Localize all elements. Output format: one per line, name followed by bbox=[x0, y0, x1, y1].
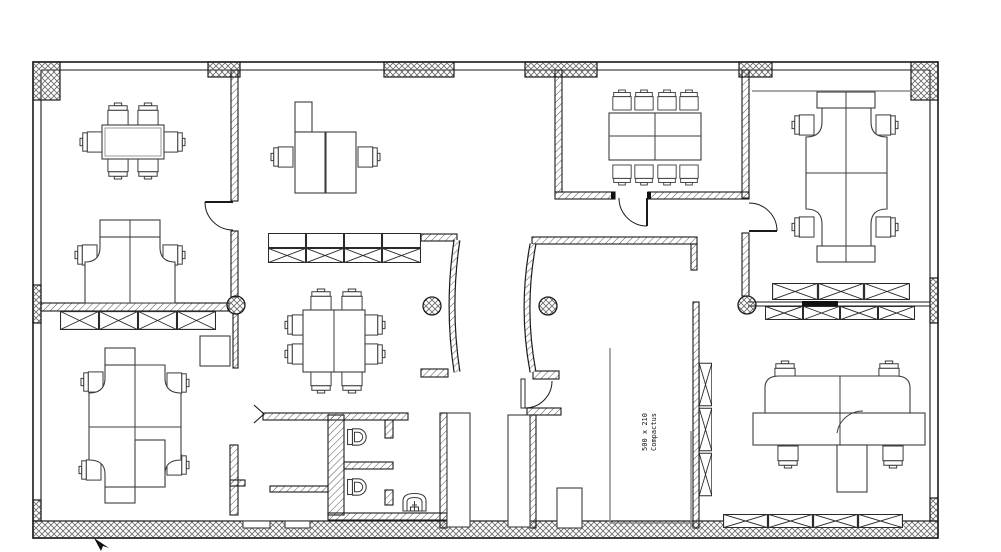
door-swing bbox=[521, 379, 552, 408]
door-sill bbox=[243, 521, 270, 528]
floor-plan-drawing: Compactus 500 x 210 bbox=[0, 0, 1001, 552]
wall-solid-segment bbox=[802, 301, 838, 306]
toilet bbox=[348, 429, 367, 445]
task-chair bbox=[342, 289, 362, 311]
task-chair bbox=[79, 460, 101, 480]
task-chair bbox=[163, 132, 185, 152]
workstation-pod-top-center bbox=[271, 102, 380, 193]
structural-column bbox=[423, 297, 441, 315]
task-chair bbox=[358, 147, 380, 167]
cabinet-box bbox=[200, 336, 230, 366]
structural-column bbox=[227, 296, 245, 314]
task-chair bbox=[792, 115, 814, 135]
task-chair bbox=[658, 90, 676, 110]
workstation-pod-left bbox=[75, 220, 185, 303]
compactus-label-line2: 500 x 210 bbox=[641, 413, 649, 451]
compactus-label-line1: Compactus bbox=[650, 413, 658, 451]
task-chair bbox=[680, 165, 698, 185]
storage-cabinets-center bbox=[268, 233, 420, 262]
workstation-pod-bottom-left bbox=[79, 348, 189, 503]
task-chair bbox=[613, 165, 631, 185]
task-chair bbox=[876, 217, 898, 237]
floor-plan-page: Compactus 500 x 210 bbox=[0, 0, 1001, 552]
storage-cabinets-right-lower bbox=[765, 306, 914, 319]
urinal bbox=[403, 494, 426, 512]
task-chair bbox=[342, 371, 362, 393]
conference-table bbox=[609, 90, 701, 185]
task-chair bbox=[108, 157, 128, 179]
task-chair bbox=[271, 147, 293, 167]
curved-partition-west bbox=[452, 240, 457, 372]
task-chair bbox=[311, 289, 331, 311]
task-chair bbox=[778, 446, 798, 468]
toilet bbox=[348, 479, 367, 495]
task-chair bbox=[792, 217, 814, 237]
storage-cabinets-compactus bbox=[699, 363, 712, 496]
task-chair bbox=[363, 315, 385, 335]
door-swing bbox=[205, 202, 233, 230]
storage-cabinets-left bbox=[60, 312, 215, 330]
compactus-label: Compactus 500 x 210 bbox=[641, 413, 658, 451]
workstation-pod-bottom-right bbox=[753, 361, 925, 492]
task-chair bbox=[635, 165, 653, 185]
door-swing bbox=[749, 203, 777, 231]
structural-column bbox=[738, 296, 756, 314]
door-sill bbox=[285, 521, 310, 528]
task-chair bbox=[635, 90, 653, 110]
task-chair bbox=[363, 344, 385, 364]
cursor-arrow bbox=[94, 538, 109, 551]
task-chair bbox=[613, 90, 631, 110]
task-chair bbox=[876, 115, 898, 135]
storage-cabinets-right-upper bbox=[773, 283, 910, 299]
workstation-pod-top-right bbox=[792, 92, 898, 262]
task-chair bbox=[883, 446, 903, 468]
structural-column bbox=[539, 297, 557, 315]
task-chair bbox=[311, 371, 331, 393]
door-swing bbox=[611, 192, 651, 226]
doors bbox=[205, 192, 777, 408]
meeting-table-top-left bbox=[80, 103, 185, 179]
task-chair bbox=[658, 165, 676, 185]
task-chair bbox=[680, 90, 698, 110]
meeting-table-center bbox=[285, 289, 385, 393]
task-chair bbox=[138, 157, 158, 179]
task-chair bbox=[81, 372, 103, 392]
task-chair bbox=[108, 103, 128, 125]
task-chair bbox=[80, 132, 102, 152]
curved-partition-east bbox=[527, 244, 533, 372]
task-chair bbox=[138, 103, 158, 125]
